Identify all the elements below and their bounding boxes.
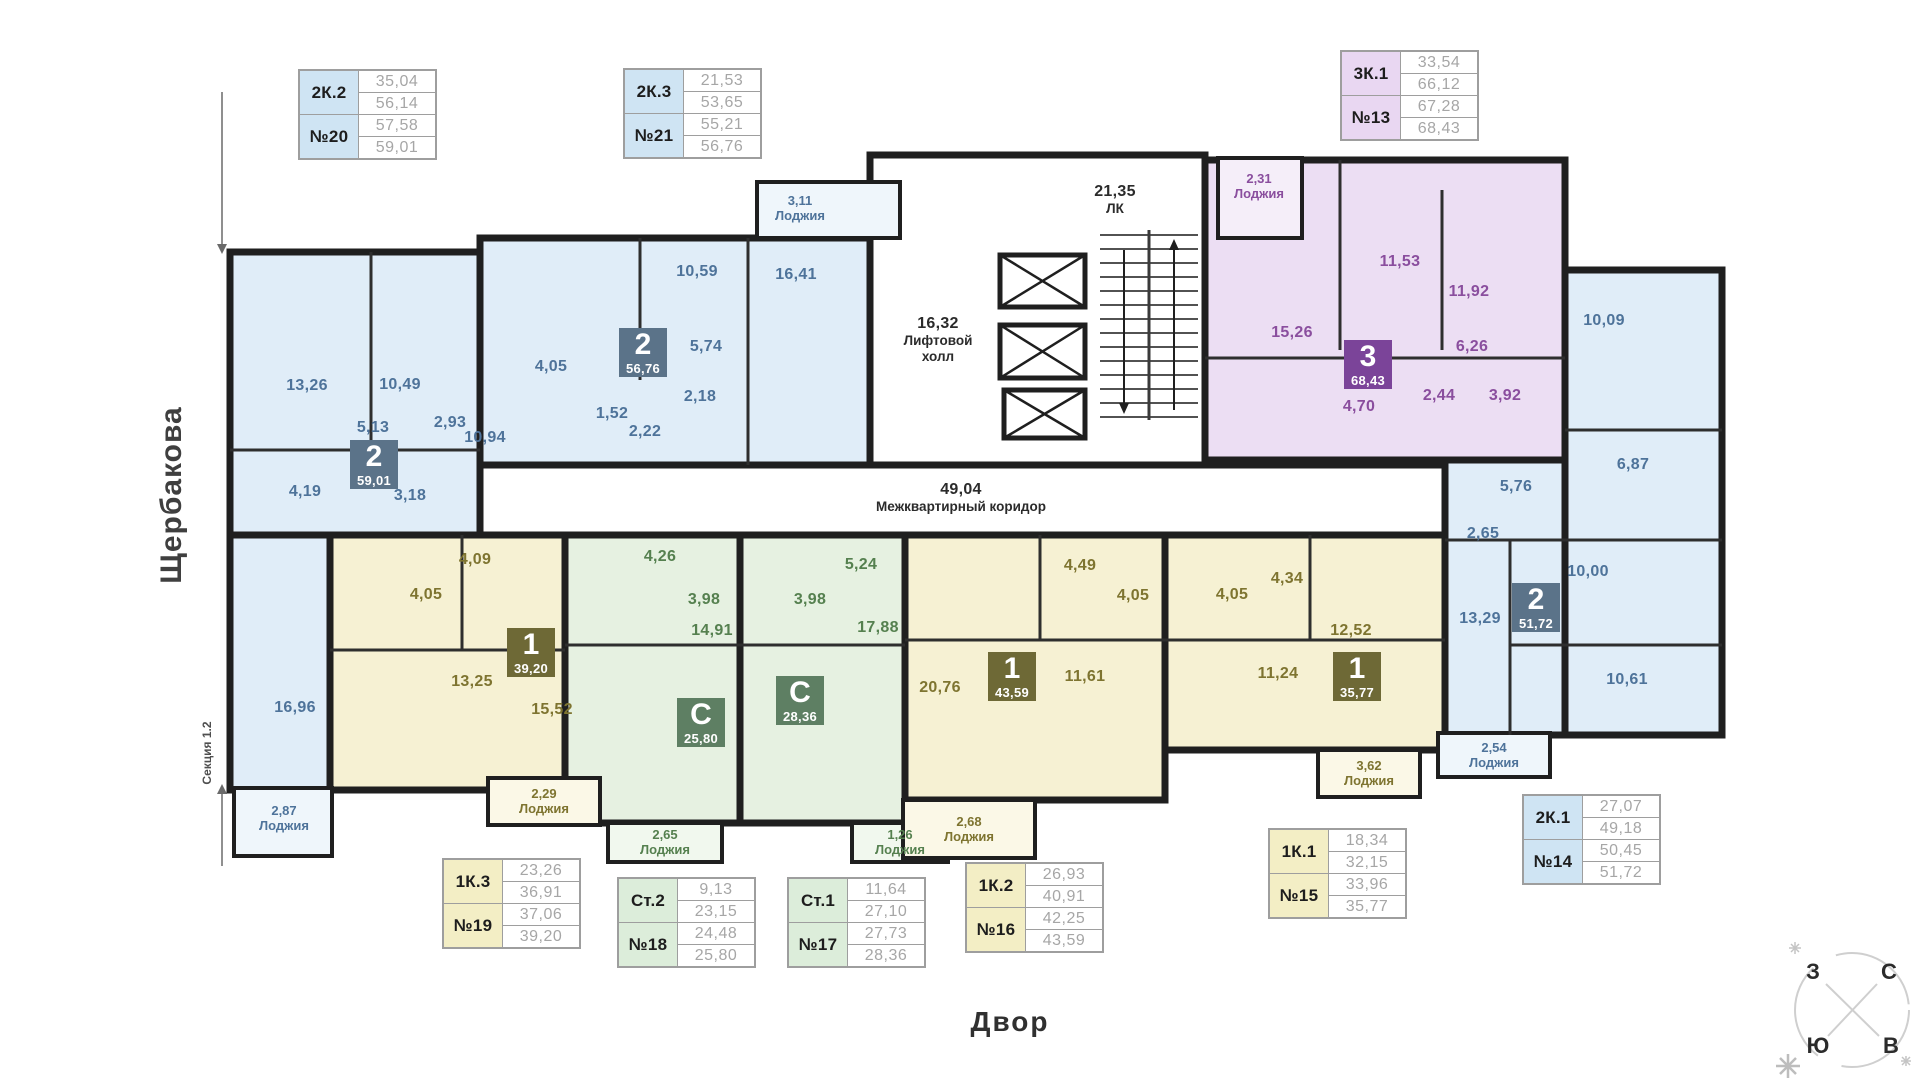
lift-hall-name: Лифтовой холл <box>888 333 988 365</box>
annotation-lines <box>217 92 227 866</box>
badge-total-area: 28,36 <box>776 710 824 723</box>
area-value: 26,93 <box>1026 864 1102 885</box>
area-value: 27,73 <box>848 923 924 944</box>
area-value: 49,18 <box>1583 818 1659 839</box>
apartment-info-table-18[interactable]: Ст.2 №18 9,13 23,15 24,48 25,80 <box>617 877 756 968</box>
area-value: 23,15 <box>678 901 754 922</box>
badge-room-count: 2 <box>619 330 667 360</box>
room-area-label: 10,09 <box>1583 312 1625 330</box>
apartment-number-label: №16 <box>967 908 1025 951</box>
badge-total-area: 59,01 <box>350 474 398 487</box>
room-area-label: 2,44 <box>1423 387 1455 405</box>
apartment-info-table-16[interactable]: 1К.2 №16 26,93 40,91 42,25 43,59 <box>965 862 1104 953</box>
apartment-badge-20[interactable]: 2 59,01 <box>350 440 398 489</box>
room-area-label: 10,00 <box>1567 563 1609 581</box>
corridor-name: Межквартирный коридор <box>876 499 1046 515</box>
street-name-label: Щербакова <box>155 406 189 583</box>
area-value: 27,07 <box>1583 796 1659 817</box>
apartment-number-label: №14 <box>1524 840 1582 883</box>
room-area-label: 5,74 <box>690 338 722 356</box>
loggia-label: 2,54 Лоджия <box>1469 740 1519 770</box>
loggia-area: 2,87 <box>259 803 309 818</box>
apartment-info-table-14[interactable]: 2К.1 №14 27,07 49,18 50,45 51,72 <box>1522 794 1661 885</box>
loggia-area: 2,29 <box>519 786 569 801</box>
room-area-label: 4,09 <box>459 551 491 569</box>
apartment-type-label: 2К.3 <box>625 70 683 113</box>
apartment-number-label: №20 <box>300 115 358 158</box>
loggia-label: 2,68 Лоджия <box>944 814 994 844</box>
area-value: 33,96 <box>1329 874 1405 895</box>
loggia-label: 3,11 Лоджия <box>775 193 825 223</box>
area-value: 18,34 <box>1329 830 1405 851</box>
loggia-name: Лоджия <box>640 842 690 857</box>
room-area-label: 2,22 <box>629 423 661 441</box>
section-label: Секция 1.2 <box>200 721 214 784</box>
apartment-badge-18[interactable]: С 25,80 <box>677 698 725 747</box>
room-area-label: 4,05 <box>1117 587 1149 605</box>
room-area-label: 4,49 <box>1064 557 1096 575</box>
area-value: 28,36 <box>848 945 924 966</box>
corridor-area: 49,04 <box>876 481 1046 499</box>
room-area-label: 10,49 <box>379 376 421 394</box>
loggia-name: Лоджия <box>1344 773 1394 788</box>
badge-total-area: 56,76 <box>619 362 667 375</box>
apartment-type-label: 2К.2 <box>300 71 358 114</box>
compass-south-letter: Ю <box>1807 1033 1830 1059</box>
badge-total-area: 25,80 <box>677 732 725 745</box>
area-value: 56,14 <box>359 93 435 114</box>
room-area-label: 13,29 <box>1459 610 1501 628</box>
apartment-badge-21[interactable]: 2 56,76 <box>619 328 667 377</box>
badge-room-count: 1 <box>988 654 1036 684</box>
area-value: 56,76 <box>684 136 760 157</box>
loggia-name: Лоджия <box>875 842 925 857</box>
loggia-area: 2,54 <box>1469 740 1519 755</box>
room-area-label: 10,94 <box>464 429 506 447</box>
compass-star-small-right <box>1901 1056 1911 1066</box>
courtyard-label: Двор <box>971 1006 1050 1038</box>
room-area-label: 14,91 <box>691 622 733 640</box>
loggia-name: Лоджия <box>259 818 309 833</box>
room-area-label: 11,24 <box>1258 665 1299 683</box>
compass-star-small-top <box>1789 942 1801 954</box>
apartment-number-label: №15 <box>1270 874 1328 917</box>
area-value: 32,15 <box>1329 852 1405 873</box>
apartment-badge-13[interactable]: 3 68,43 <box>1344 340 1392 389</box>
compass-west-letter: З <box>1806 959 1820 985</box>
room-area-label: 17,88 <box>857 619 899 637</box>
badge-room-count: 1 <box>1333 654 1381 684</box>
room-area-label: 3,18 <box>394 487 426 505</box>
area-value: 59,01 <box>359 137 435 158</box>
loggia-area: 2,68 <box>944 814 994 829</box>
loggia-name: Лоджия <box>775 208 825 223</box>
room-area-label: 4,05 <box>410 586 442 604</box>
floor-plan-drawing <box>0 0 1920 1085</box>
room-area-label: 6,87 <box>1617 456 1649 474</box>
apartment-type-label: Ст.1 <box>789 879 847 922</box>
apartment-type-label: 1К.2 <box>967 864 1025 907</box>
room-area-label: 6,26 <box>1456 338 1488 356</box>
room-area-label: 2,18 <box>684 388 716 406</box>
area-value: 9,13 <box>678 879 754 900</box>
apartment-type-label: 1К.1 <box>1270 830 1328 873</box>
room-area-label: 11,61 <box>1065 668 1106 686</box>
room-area-label: 4,70 <box>1343 398 1375 416</box>
area-value: 27,10 <box>848 901 924 922</box>
loggia-label: 3,62 Лоджия <box>1344 758 1394 788</box>
area-value: 33,54 <box>1401 52 1477 73</box>
room-area-label: 4,19 <box>289 483 321 501</box>
area-value: 35,04 <box>359 71 435 92</box>
room-area-label: 13,26 <box>286 377 328 395</box>
area-value: 11,64 <box>848 879 924 900</box>
room-area-label: 2,65 <box>1467 525 1499 543</box>
lift-hall-label: 16,32 Лифтовой холл <box>888 315 988 365</box>
floor-plan-page: Щербакова Секция 1.2 Двор З С Ю В 16,32 … <box>0 0 1920 1085</box>
room-area-label: 1,52 <box>596 405 628 423</box>
loggia-name: Лоджия <box>519 801 569 816</box>
area-value: 24,48 <box>678 923 754 944</box>
apartment-number-label: №21 <box>625 114 683 157</box>
badge-total-area: 43,59 <box>988 686 1036 699</box>
apartment-number-label: №19 <box>444 904 502 947</box>
loggia-area: 3,62 <box>1344 758 1394 773</box>
area-value: 25,80 <box>678 945 754 966</box>
badge-room-count: 2 <box>1512 585 1560 615</box>
room-area-label: 16,96 <box>274 699 316 717</box>
area-value: 50,45 <box>1583 840 1659 861</box>
stairs-name: ЛК <box>1094 201 1136 217</box>
area-value: 66,12 <box>1401 74 1477 95</box>
loggia-name: Лоджия <box>944 829 994 844</box>
compass-north-letter: С <box>1881 959 1897 985</box>
apartment-info-table-13[interactable]: 3К.1 №13 33,54 66,12 67,28 68,43 <box>1340 50 1479 141</box>
room-area-label: 20,76 <box>919 679 961 697</box>
loggia-name: Лоджия <box>1234 186 1284 201</box>
apartment-info-table-20[interactable]: 2К.2 №20 35,04 56,14 57,58 59,01 <box>298 69 437 160</box>
room-area-label: 11,92 <box>1449 283 1490 301</box>
loggia-area: 2,31 <box>1234 171 1284 186</box>
area-value: 35,77 <box>1329 896 1405 917</box>
room-area-label: 12,52 <box>1330 622 1372 640</box>
room-area-label: 5,13 <box>357 419 389 437</box>
apartment-info-table-15[interactable]: 1К.1 №15 18,34 32,15 33,96 35,77 <box>1268 828 1407 919</box>
loggia-label: 2,31 Лоджия <box>1234 171 1284 201</box>
loggia-name: Лоджия <box>1469 755 1519 770</box>
badge-total-area: 68,43 <box>1344 374 1392 387</box>
area-value: 53,65 <box>684 92 760 113</box>
area-value: 43,59 <box>1026 930 1102 951</box>
room-area-label: 15,52 <box>531 701 573 719</box>
area-value: 39,20 <box>503 926 579 947</box>
room-area-label: 3,92 <box>1489 387 1521 405</box>
room-area-label: 16,41 <box>775 266 817 284</box>
lift-hall-area: 16,32 <box>888 315 988 333</box>
compass-star-large <box>1776 1054 1800 1078</box>
apartment-info-table-21[interactable]: 2К.3 №21 21,53 53,65 55,21 56,76 <box>623 68 762 159</box>
apartment-badge-16[interactable]: 1 43,59 <box>988 652 1036 701</box>
room-area-label: 4,34 <box>1271 570 1303 588</box>
stairs-area: 21,35 <box>1094 183 1136 201</box>
room-area-label: 4,05 <box>1216 586 1248 604</box>
loggia-area: 1,26 <box>875 827 925 842</box>
apartment-badge-15[interactable]: 1 35,77 <box>1333 652 1381 701</box>
apartment-number-label: №18 <box>619 923 677 966</box>
room-area-label: 3,98 <box>688 591 720 609</box>
area-value: 40,91 <box>1026 886 1102 907</box>
apartment-badge-17[interactable]: С 28,36 <box>776 676 824 725</box>
area-value: 57,58 <box>359 115 435 136</box>
badge-room-count: 3 <box>1344 342 1392 372</box>
stairs-label: 21,35 ЛК <box>1094 183 1136 217</box>
area-value: 23,26 <box>503 860 579 881</box>
room-area-label: 4,26 <box>644 548 676 566</box>
loggia-label: 1,26 Лоджия <box>875 827 925 857</box>
loggia-label: 2,29 Лоджия <box>519 786 569 816</box>
badge-total-area: 39,20 <box>507 662 555 675</box>
badge-room-count: С <box>677 700 725 730</box>
area-value: 67,28 <box>1401 96 1477 117</box>
room-area-label: 4,05 <box>535 358 567 376</box>
apartment-type-label: 3К.1 <box>1342 52 1400 95</box>
apartment-type-label: 1К.3 <box>444 860 502 903</box>
area-value: 55,21 <box>684 114 760 135</box>
badge-room-count: 2 <box>350 442 398 472</box>
room-area-label: 15,26 <box>1271 324 1313 342</box>
room-area-label: 5,76 <box>1500 478 1532 496</box>
apartment-type-label: Ст.2 <box>619 879 677 922</box>
area-value: 36,91 <box>503 882 579 903</box>
compass-east-letter: В <box>1883 1033 1899 1059</box>
room-area-label: 2,93 <box>434 414 466 432</box>
loggia-label: 2,87 Лоджия <box>259 803 309 833</box>
corridor-label: 49,04 Межквартирный коридор <box>876 481 1046 515</box>
area-value: 51,72 <box>1583 862 1659 883</box>
apartment-number-label: №13 <box>1342 96 1400 139</box>
room-area-label: 5,24 <box>845 556 877 574</box>
room-area-label: 13,25 <box>451 673 493 691</box>
area-value: 21,53 <box>684 70 760 91</box>
apartment-number-label: №17 <box>789 923 847 966</box>
badge-room-count: 1 <box>507 630 555 660</box>
apartment-type-label: 2К.1 <box>1524 796 1582 839</box>
room-area-label: 3,98 <box>794 591 826 609</box>
area-value: 42,25 <box>1026 908 1102 929</box>
room-area-label: 10,59 <box>676 263 718 281</box>
badge-total-area: 51,72 <box>1512 617 1560 630</box>
badge-room-count: С <box>776 678 824 708</box>
loggia-area: 2,65 <box>640 827 690 842</box>
loggia-label: 2,65 Лоджия <box>640 827 690 857</box>
apartment-badge-14[interactable]: 2 51,72 <box>1512 583 1560 632</box>
badge-total-area: 35,77 <box>1333 686 1381 699</box>
apartment-badge-19[interactable]: 1 39,20 <box>507 628 555 677</box>
room-area-label: 10,61 <box>1606 671 1648 689</box>
room-area-label: 11,53 <box>1380 253 1421 271</box>
apartment-info-table-19[interactable]: 1К.3 №19 23,26 36,91 37,06 39,20 <box>442 858 581 949</box>
apartment-info-table-17[interactable]: Ст.1 №17 11,64 27,10 27,73 28,36 <box>787 877 926 968</box>
area-value: 37,06 <box>503 904 579 925</box>
area-value: 68,43 <box>1401 118 1477 139</box>
loggia-area: 3,11 <box>775 193 825 208</box>
